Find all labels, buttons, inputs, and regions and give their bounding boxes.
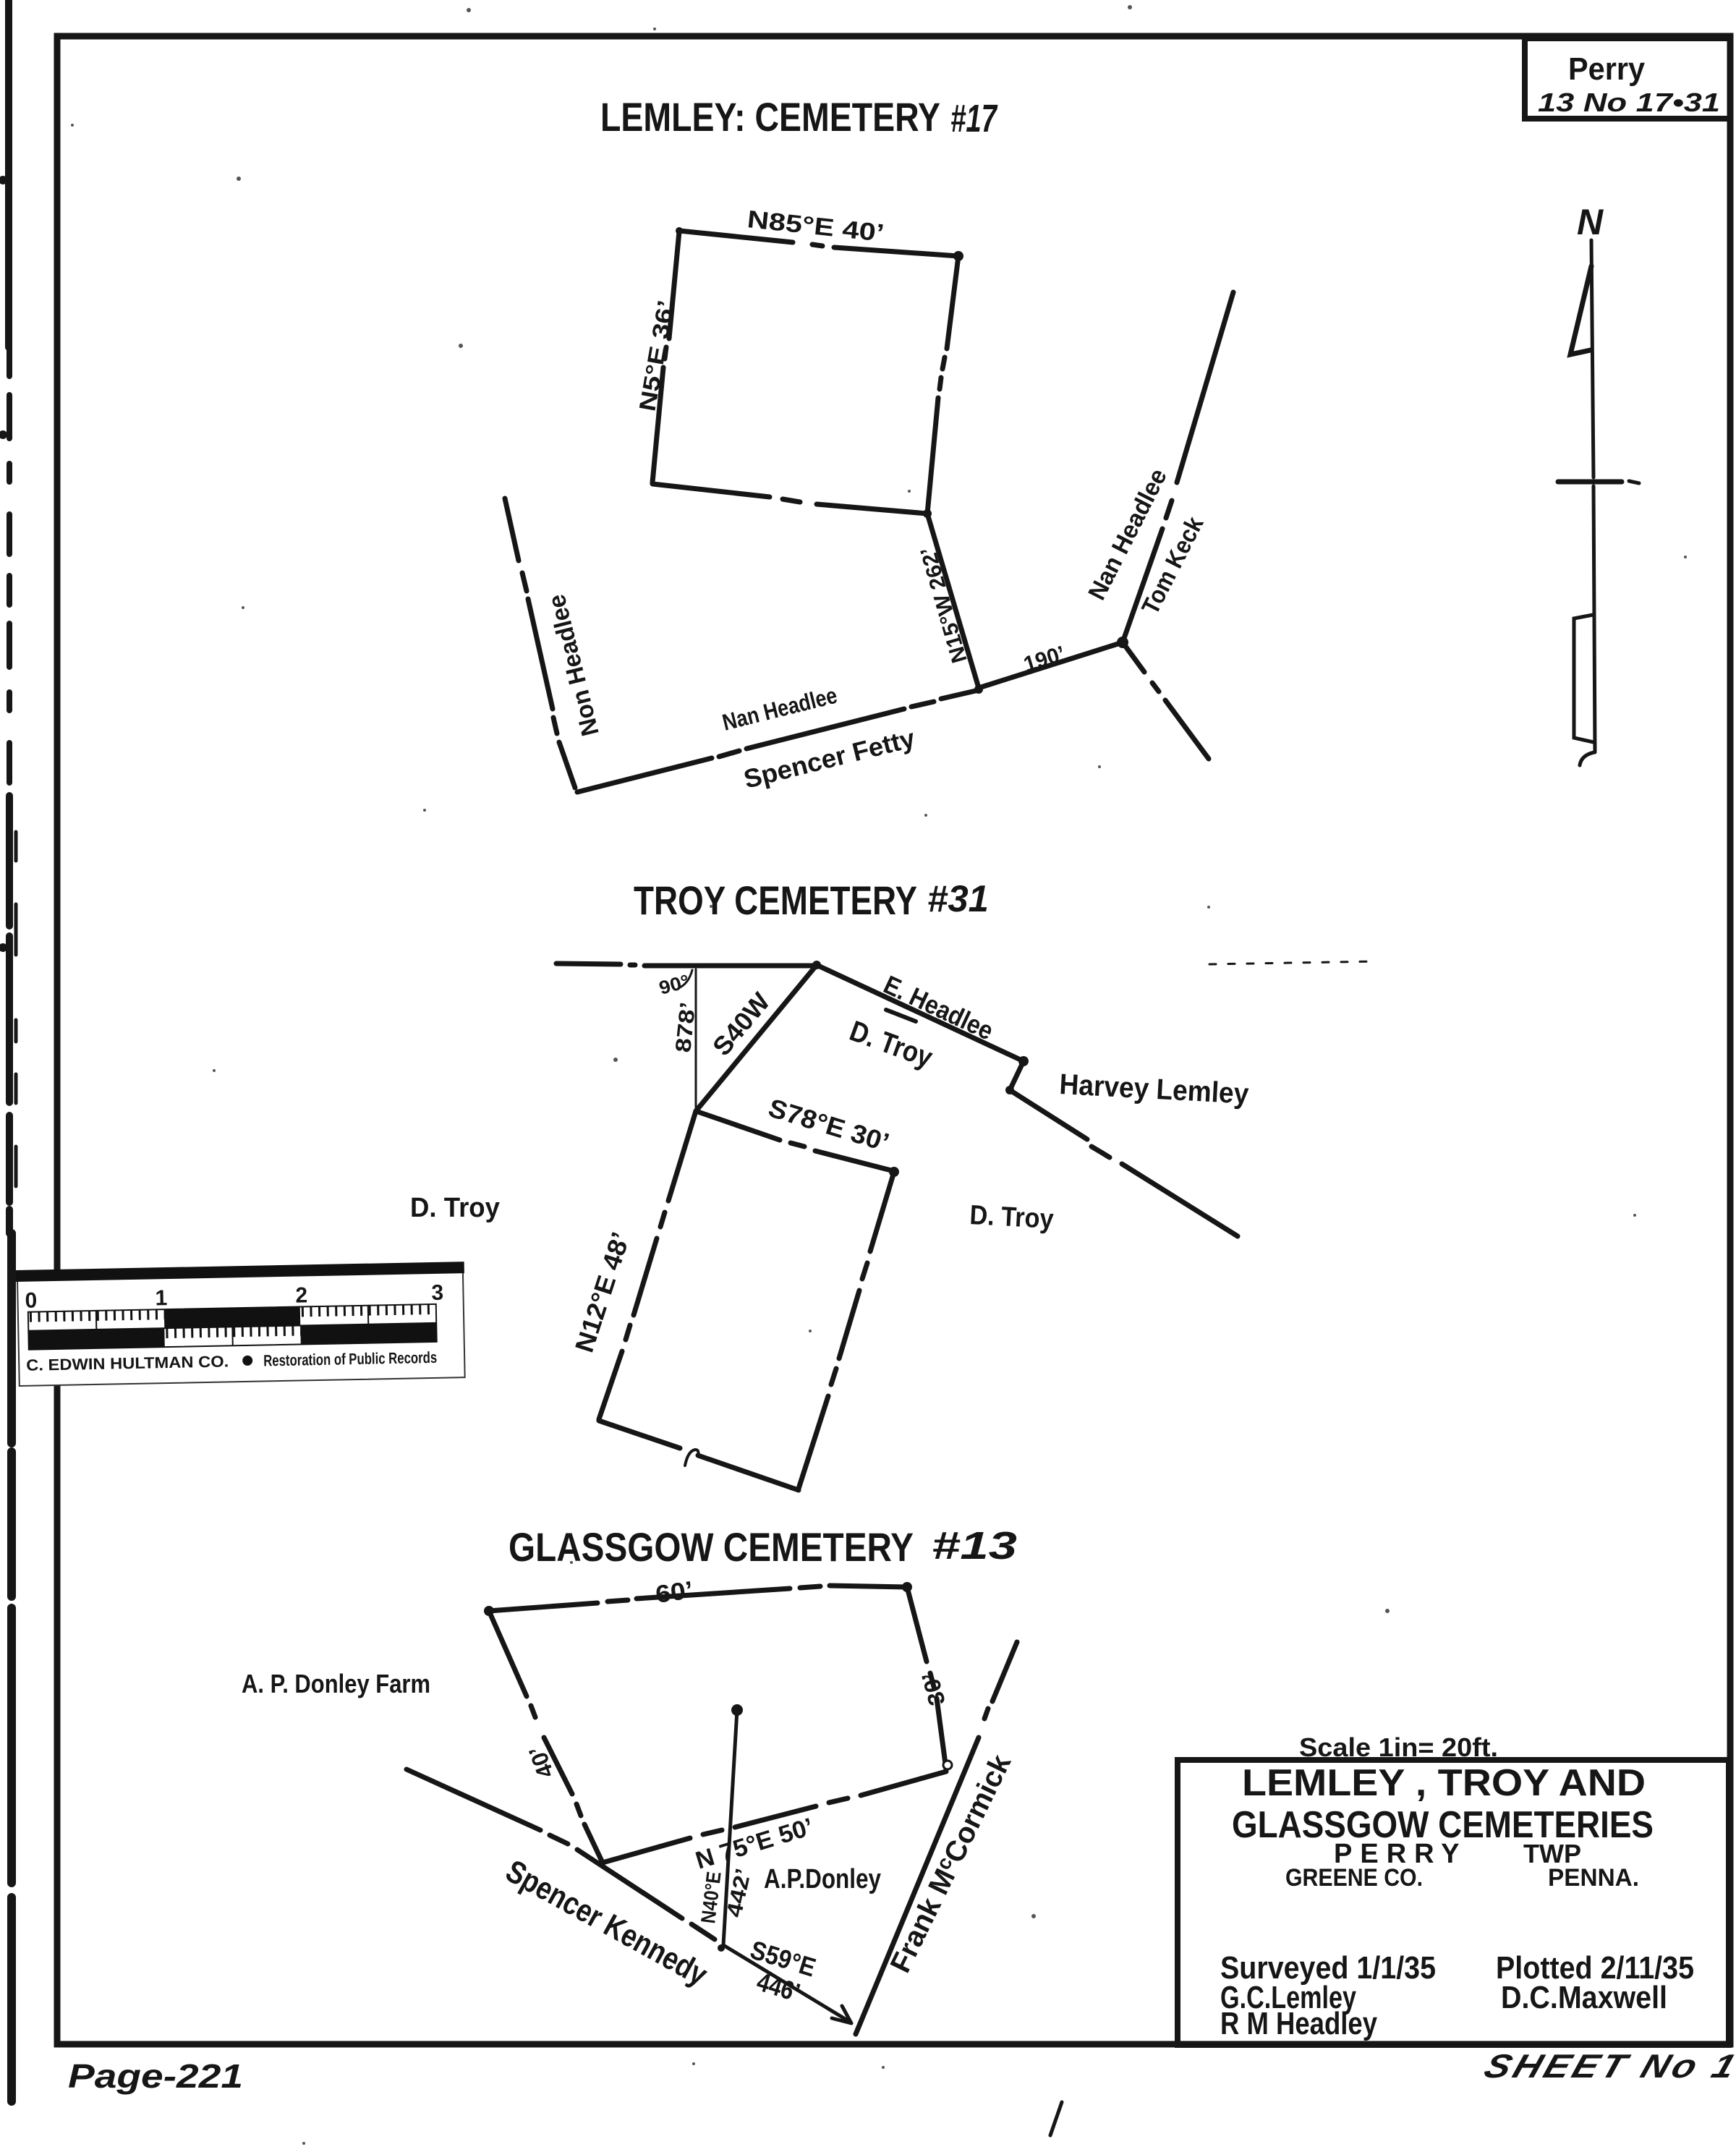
svg-text:SHEET No 1: SHEET No 1 [1480, 2048, 1736, 2085]
svg-text:Page-221: Page-221 [68, 2057, 243, 2095]
svg-text:#13: #13 [932, 1524, 1017, 1568]
svg-text:N: N [1577, 202, 1604, 242]
svg-text:LEMLEY: CEMETERY: LEMLEY: CEMETERY [600, 94, 940, 140]
svg-text:D. Troy: D. Troy [410, 1193, 500, 1223]
svg-text:0: 0 [25, 1288, 37, 1312]
svg-text:A. P. Donley Farm: A. P. Donley Farm [242, 1669, 430, 1698]
svg-text:#17: #17 [950, 97, 998, 140]
svg-text:A.P.Donley: A.P.Donley [764, 1864, 881, 1894]
svg-text:#31: #31 [927, 878, 989, 920]
svg-text:D. Troy: D. Troy [969, 1200, 1055, 1235]
svg-text:LEMLEY , TROY AND: LEMLEY , TROY AND [1242, 1762, 1646, 1804]
svg-text:1: 1 [155, 1286, 167, 1310]
svg-text:R M Headley: R M Headley [1220, 2006, 1377, 2041]
svg-text:D.C.Maxwell: D.C.Maxwell [1501, 1980, 1667, 2015]
svg-text:GLASSGOW CEMETERY: GLASSGOW CEMETERY [509, 1524, 914, 1570]
svg-text:TROY CEMETERY: TROY CEMETERY [634, 877, 917, 923]
svg-text:Perry: Perry [1568, 51, 1645, 87]
svg-text:GREENE CO.: GREENE CO. [1285, 1864, 1423, 1892]
svg-text:2: 2 [295, 1283, 307, 1307]
svg-text:3: 3 [431, 1281, 443, 1305]
svg-text:60’: 60’ [654, 1576, 695, 1609]
svg-text:PENNA.: PENNA. [1548, 1864, 1639, 1892]
svg-text:Restoration of Public Records: Restoration of Public Records [263, 1348, 437, 1370]
svg-text:13 No 17•31: 13 No 17•31 [1538, 88, 1720, 117]
